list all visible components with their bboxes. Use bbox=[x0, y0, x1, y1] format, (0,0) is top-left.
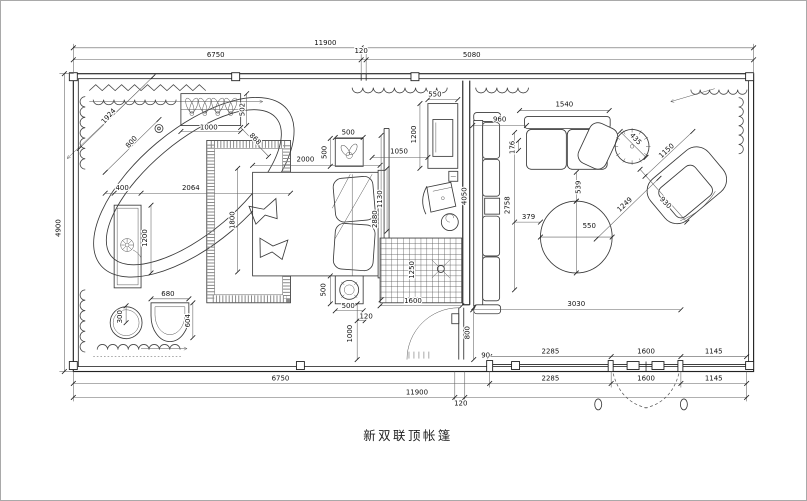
dim-label-bed-gap: 120 bbox=[359, 313, 372, 321]
window-post bbox=[487, 361, 493, 372]
curtain-icon bbox=[691, 90, 747, 95]
french-door-leaf bbox=[652, 362, 664, 370]
sofa-icon bbox=[483, 216, 500, 256]
floor-plan-canvas: 1190067501205080490022851600114567502285… bbox=[0, 0, 807, 501]
vanity-console-inner bbox=[117, 208, 138, 285]
dim-tick bbox=[594, 237, 599, 242]
column-marker bbox=[232, 73, 240, 81]
dim-label-sofa-top-width: 1540 bbox=[555, 101, 573, 109]
entry-door-swing-arc bbox=[407, 308, 459, 360]
dim-label-tv-height: 1200 bbox=[410, 126, 418, 144]
dim-label-nightstand-bottom-depth: 500 bbox=[319, 283, 327, 296]
flower-icon bbox=[190, 112, 194, 116]
tv-cabinet-icon bbox=[428, 104, 458, 169]
dim-label-tub-width: 800 bbox=[124, 134, 139, 149]
outer-wall bbox=[73, 74, 753, 372]
dim-label-desk-gap: 1130 bbox=[376, 190, 384, 208]
flower-icon bbox=[216, 112, 220, 116]
dim-label-tv-gap: 1050 bbox=[390, 147, 408, 155]
dim-label-top-seg-wall: 120 bbox=[355, 47, 368, 55]
desk-chair-back bbox=[423, 186, 427, 214]
dim-label-left-height: 4900 bbox=[54, 219, 62, 237]
furniture-layer bbox=[64, 65, 734, 342]
flower-center bbox=[125, 243, 129, 247]
drawing-title: 新双联顶帐篷 bbox=[363, 428, 453, 443]
flower-petal bbox=[129, 240, 132, 243]
curtains-layer bbox=[67, 85, 747, 357]
dim-label-mid-wall: 4050 bbox=[461, 187, 469, 205]
dim-label-table-diameter: 550 bbox=[583, 222, 596, 230]
dim-label-out-total: 11900 bbox=[406, 388, 428, 396]
dim-line bbox=[596, 178, 659, 239]
dim-tick bbox=[157, 117, 162, 122]
dim-label-tub-diag: 1924 bbox=[100, 107, 118, 126]
dim-label-chair-depth: 604 bbox=[184, 314, 192, 328]
dim-label-armchair-diag: 1150 bbox=[657, 142, 676, 160]
dim-label-tv-width: 550 bbox=[428, 91, 441, 99]
horseshoe-chair-inner bbox=[155, 307, 185, 335]
bathtub-faucet-icon bbox=[155, 125, 163, 133]
curtain-icon bbox=[80, 290, 85, 352]
dim-label-bed-wall: 2880 bbox=[371, 210, 379, 228]
dim-label-plant-diameter: 435 bbox=[628, 131, 643, 146]
dim-label-nightstand-bottom-width: 500 bbox=[342, 302, 355, 310]
floor-plan-drawing: 1190067501205080490022851600114567502285… bbox=[1, 1, 806, 500]
column-marker bbox=[512, 362, 520, 370]
dim-label-sofa-gap: 176 bbox=[509, 141, 517, 154]
dim-label-out-6750: 6750 bbox=[272, 374, 290, 382]
side-table-swirl bbox=[446, 214, 454, 222]
curtain-icon bbox=[739, 98, 744, 154]
dim-label-in-2285: 2285 bbox=[542, 348, 560, 356]
dim-label-planter-depth: 502 bbox=[239, 103, 247, 116]
dim-label-bed-width: 2000 bbox=[297, 155, 315, 163]
dim-label-out-1600: 1600 bbox=[637, 374, 655, 382]
door-stop-icon bbox=[595, 399, 602, 410]
dim-label-top-seg-left: 6750 bbox=[207, 51, 225, 59]
dim-label-out-1145: 1145 bbox=[705, 374, 723, 382]
dim-label-door-jamb: 90 bbox=[481, 352, 490, 360]
curtain-icon bbox=[476, 88, 529, 93]
desk-chair-icon bbox=[427, 182, 456, 212]
curtain-pleat-icon bbox=[89, 85, 206, 91]
curtain-arrow bbox=[671, 89, 715, 102]
dim-label-sofa-left-depth: 960 bbox=[493, 116, 506, 124]
sofa-icon bbox=[527, 129, 567, 169]
dim-label-nightstand-top-depth: 500 bbox=[320, 146, 328, 159]
curtain-icon bbox=[93, 100, 176, 105]
outer-wall-inner bbox=[78, 79, 748, 367]
dim-label-vanity-span: 2064 bbox=[182, 184, 200, 192]
dim-label-top-total: 11900 bbox=[314, 39, 336, 47]
window-post bbox=[678, 361, 683, 372]
bathtub-faucet-icon bbox=[158, 127, 161, 130]
dim-label-table-gap: 539 bbox=[574, 181, 582, 194]
bed-partition-fill bbox=[384, 128, 389, 240]
dim-label-rug-height: 1800 bbox=[229, 211, 237, 229]
column-marker bbox=[296, 362, 304, 370]
window-post bbox=[608, 361, 613, 372]
dim-label-in-1145: 1145 bbox=[705, 348, 723, 356]
sofa-back bbox=[474, 121, 483, 306]
sofa-armrest bbox=[474, 305, 501, 314]
column-marker bbox=[746, 362, 754, 370]
flower-icon bbox=[203, 112, 207, 116]
flower-petal bbox=[123, 240, 126, 243]
dim-label-living-width: 3030 bbox=[567, 300, 585, 308]
curtain-icon bbox=[80, 97, 85, 170]
sofa-icon bbox=[483, 257, 500, 301]
dim-label-chair-width: 680 bbox=[161, 290, 174, 298]
dim-tick bbox=[103, 170, 108, 175]
entry-door-handle bbox=[452, 314, 459, 324]
flower-petal bbox=[123, 247, 126, 250]
sofa-side-table bbox=[485, 198, 500, 214]
dim-label-out-2285: 2285 bbox=[542, 374, 560, 382]
flower-leaf bbox=[133, 250, 141, 258]
dim-label-out-120: 120 bbox=[454, 399, 467, 407]
dim-label-nightstand-top-width: 500 bbox=[342, 128, 355, 136]
flower-petal bbox=[129, 247, 132, 250]
sofa-icon bbox=[483, 159, 500, 196]
dim-label-shower-width: 1600 bbox=[404, 297, 422, 305]
dim-label-door-width: 800 bbox=[464, 326, 472, 339]
french-door-leaf bbox=[627, 362, 639, 370]
dim-label-vanity-offset: 400 bbox=[115, 184, 128, 192]
dim-label-planter-width: 1000 bbox=[200, 123, 218, 131]
column-marker bbox=[411, 73, 419, 81]
dim-label-sofa-left-length: 2758 bbox=[504, 196, 512, 214]
dim-tick bbox=[690, 129, 695, 134]
column-marker bbox=[746, 73, 754, 81]
dim-label-shower-depth: 1250 bbox=[408, 261, 416, 279]
dim-label-bed-to-wall: 1000 bbox=[346, 325, 354, 343]
sofa-icon bbox=[483, 123, 500, 159]
dim-label-vanity-length: 1200 bbox=[141, 229, 149, 247]
dim-label-table-offset: 379 bbox=[522, 213, 535, 221]
plant-center bbox=[630, 145, 634, 149]
dim-label-in-1600: 1600 bbox=[637, 348, 655, 356]
dim-label-chair-diag: 1249 bbox=[616, 196, 634, 214]
column-marker bbox=[69, 362, 77, 370]
dim-label-stool-diameter: 300 bbox=[116, 310, 124, 323]
dim-label-top-seg-right: 5080 bbox=[463, 51, 481, 59]
door-stop-icon bbox=[680, 399, 687, 410]
